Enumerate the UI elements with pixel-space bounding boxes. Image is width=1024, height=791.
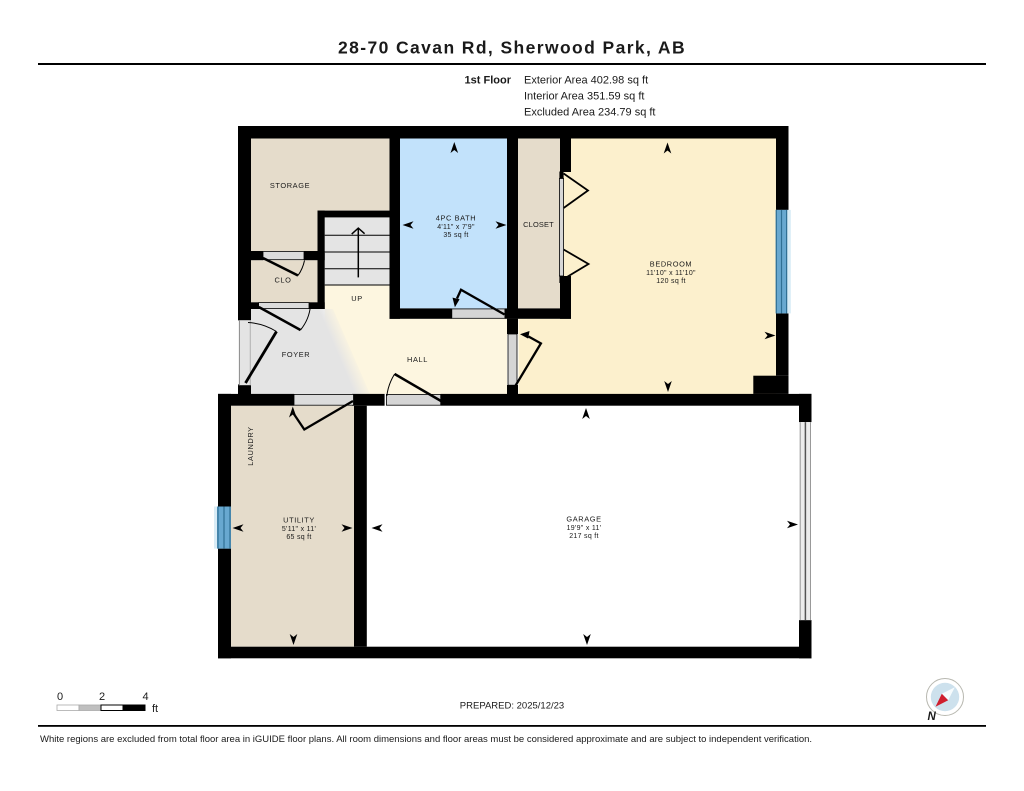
svg-text:HALL: HALL: [407, 355, 428, 364]
svg-text:PREPARED: 2025/12/23: PREPARED: 2025/12/23: [460, 701, 564, 712]
svg-text:CLO: CLO: [275, 275, 292, 284]
svg-text:120 sq ft: 120 sq ft: [656, 278, 686, 285]
svg-text:STORAGE: STORAGE: [270, 181, 310, 190]
svg-text:White regions are excluded fro: White regions are excluded from total fl…: [40, 734, 812, 745]
svg-text:BEDROOM: BEDROOM: [650, 259, 692, 268]
svg-text:ft: ft: [152, 703, 158, 715]
svg-text:0: 0: [57, 691, 63, 703]
svg-text:35 sq ft: 35 sq ft: [443, 232, 468, 239]
svg-text:65 sq ft: 65 sq ft: [286, 534, 311, 541]
svg-text:GARAGE: GARAGE: [566, 515, 601, 524]
svg-text:4: 4: [142, 691, 148, 703]
svg-text:Interior Area 351.59 sq ft: Interior Area 351.59 sq ft: [524, 91, 644, 103]
svg-text:Excluded Area 234.79 sq ft: Excluded Area 234.79 sq ft: [524, 107, 655, 119]
svg-text:N: N: [928, 711, 937, 723]
svg-text:11'10" x 11'10": 11'10" x 11'10": [646, 270, 696, 277]
svg-text:1st Floor: 1st Floor: [465, 75, 512, 87]
svg-text:28-70 Cavan Rd, Sherwood Park,: 28-70 Cavan Rd, Sherwood Park, AB: [338, 38, 686, 58]
svg-text:4PC BATH: 4PC BATH: [436, 214, 476, 223]
svg-text:19'9" x 11': 19'9" x 11': [567, 525, 602, 532]
svg-text:LAUNDRY: LAUNDRY: [246, 426, 255, 465]
svg-text:UTILITY: UTILITY: [283, 516, 315, 525]
svg-text:Exterior Area 402.98 sq ft: Exterior Area 402.98 sq ft: [524, 75, 648, 87]
svg-text:FOYER: FOYER: [282, 350, 310, 359]
svg-text:4'11" x 7'9": 4'11" x 7'9": [437, 224, 475, 231]
svg-text:CLOSET: CLOSET: [523, 220, 554, 229]
svg-text:5'11" x 11': 5'11" x 11': [282, 526, 316, 533]
svg-text:217 sq ft: 217 sq ft: [569, 533, 599, 540]
svg-text:UP: UP: [351, 294, 362, 303]
svg-text:2: 2: [99, 691, 105, 703]
